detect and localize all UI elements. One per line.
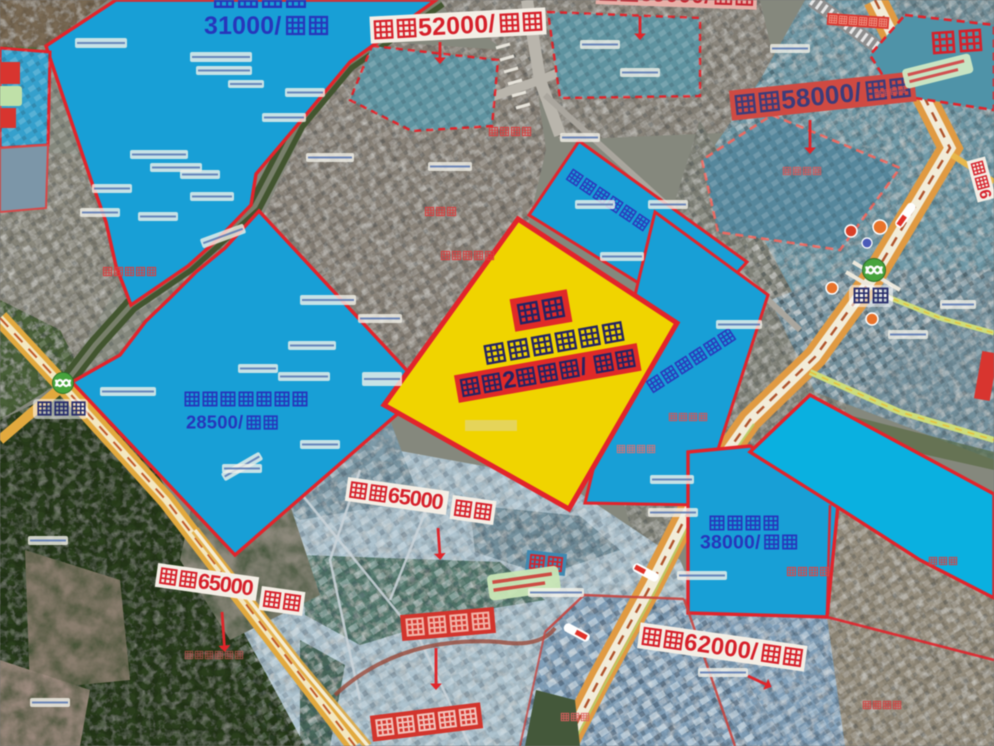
svg-text:31000/: 31000/	[204, 13, 281, 40]
svg-text:38000/: 38000/	[700, 531, 761, 553]
svg-text:28500/: 28500/	[186, 412, 243, 433]
svg-text:52000/: 52000/	[417, 11, 496, 42]
